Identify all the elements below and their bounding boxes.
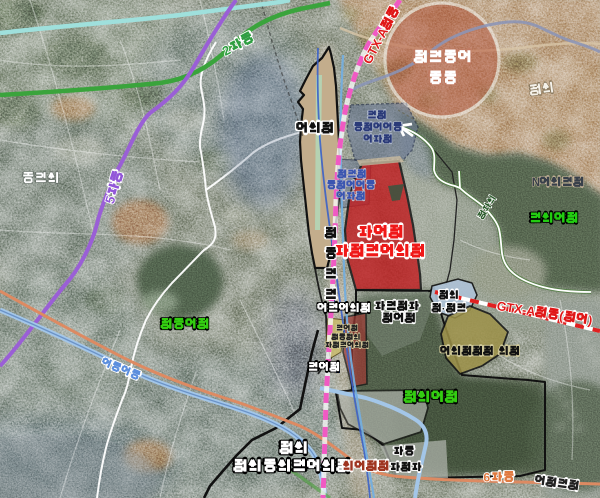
svg-text:6: 6 (483, 470, 490, 484)
svg-text:·: · (442, 303, 446, 315)
svg-text:N: N (532, 177, 540, 189)
